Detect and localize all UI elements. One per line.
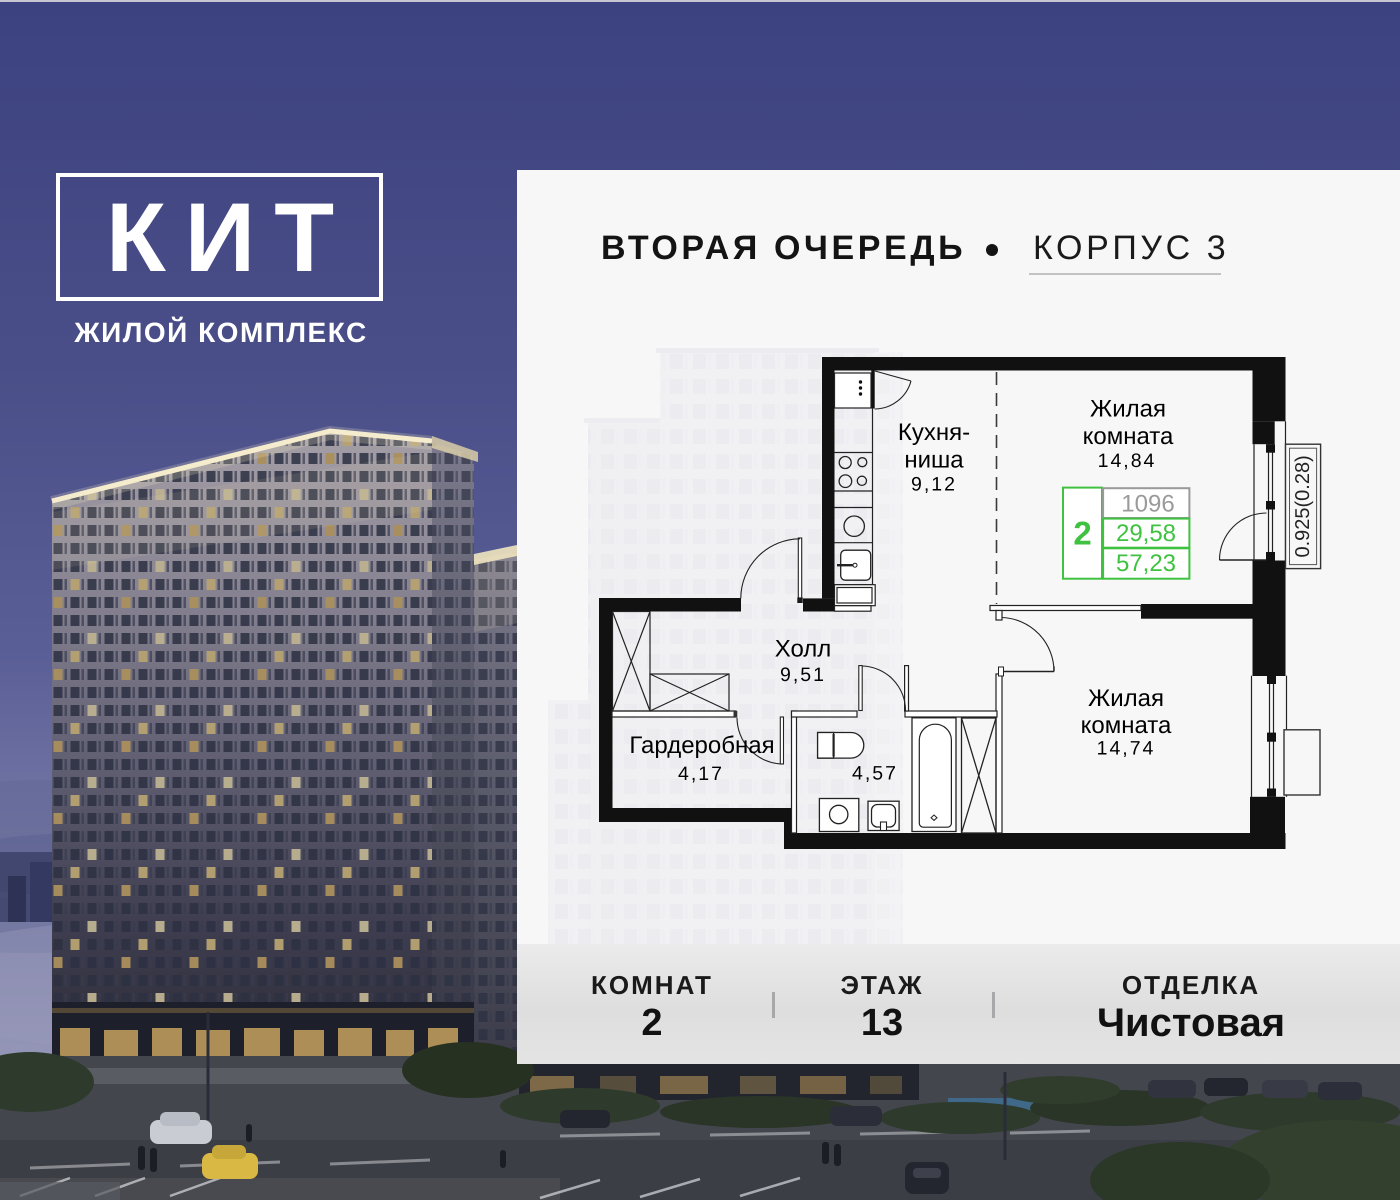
svg-text:29,58: 29,58: [1116, 520, 1176, 547]
svg-text:4,17: 4,17: [678, 763, 724, 785]
svg-text:Кухня-: Кухня-: [898, 419, 970, 446]
svg-text:Жилая: Жилая: [1090, 396, 1166, 423]
svg-text:9,51: 9,51: [780, 664, 826, 686]
svg-text:14,84: 14,84: [1098, 450, 1157, 472]
svg-text:4,57: 4,57: [852, 763, 898, 785]
svg-text:0.925(0.28): 0.925(0.28): [1292, 455, 1314, 557]
svg-text:9,12: 9,12: [911, 474, 957, 496]
svg-text:14,74: 14,74: [1097, 738, 1156, 760]
svg-text:2: 2: [1073, 515, 1091, 552]
svg-text:Гардеробная: Гардеробная: [629, 732, 774, 759]
svg-text:1096: 1096: [1121, 491, 1174, 518]
svg-text:57,23: 57,23: [1116, 550, 1176, 577]
svg-text:Жилая: Жилая: [1088, 685, 1164, 712]
svg-text:Холл: Холл: [775, 636, 832, 663]
svg-text:комната: комната: [1083, 423, 1174, 450]
svg-text:ниша: ниша: [904, 447, 964, 474]
svg-text:комната: комната: [1081, 712, 1172, 739]
